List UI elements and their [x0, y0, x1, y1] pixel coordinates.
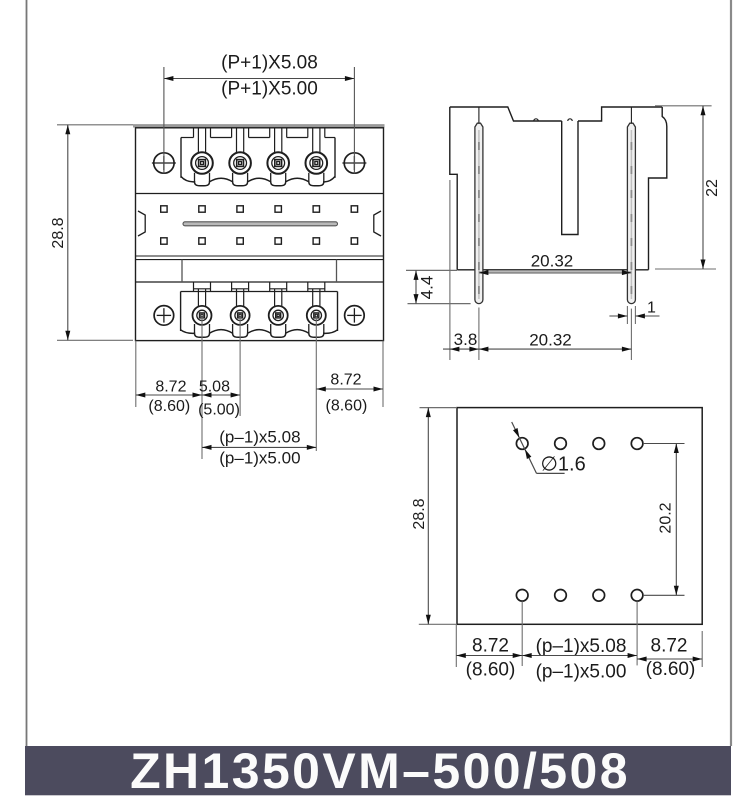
svg-text:(P+1)X5.00: (P+1)X5.00: [221, 79, 318, 100]
svg-text:28.8: 28.8: [50, 217, 67, 248]
svg-text:ZH1350VM–500/508: ZH1350VM–500/508: [130, 743, 630, 799]
svg-text:(5.00): (5.00): [198, 402, 240, 419]
svg-text:(P+1)X5.08: (P+1)X5.08: [221, 53, 318, 74]
svg-text:(8.60): (8.60): [148, 398, 190, 415]
svg-text:20.32: 20.32: [529, 331, 572, 350]
svg-text:(8.60): (8.60): [326, 398, 368, 415]
svg-text:20.32: 20.32: [531, 252, 574, 271]
svg-text:1: 1: [647, 300, 656, 317]
svg-text:4.4: 4.4: [418, 276, 437, 300]
svg-text:8.72: 8.72: [155, 379, 186, 396]
svg-text:(8.60): (8.60): [466, 660, 516, 681]
svg-text:22: 22: [704, 179, 721, 197]
svg-text:20.2: 20.2: [658, 502, 675, 533]
svg-text:(p–1)x5.08: (p–1)x5.08: [219, 428, 300, 447]
svg-text:5.08: 5.08: [199, 379, 230, 396]
svg-text:8.72: 8.72: [472, 636, 509, 657]
svg-text:∅1.6: ∅1.6: [541, 454, 586, 476]
svg-text:8.72: 8.72: [651, 636, 688, 657]
svg-text:(p–1)x5.00: (p–1)x5.00: [536, 662, 627, 683]
svg-text:28.8: 28.8: [411, 498, 428, 529]
svg-text:(p–1)x5.00: (p–1)x5.00: [219, 449, 300, 468]
svg-text:(p–1)x5.08: (p–1)x5.08: [536, 636, 627, 657]
svg-text:8.72: 8.72: [330, 372, 361, 389]
svg-text:3.8: 3.8: [454, 330, 478, 349]
svg-text:(8.60): (8.60): [646, 659, 696, 680]
